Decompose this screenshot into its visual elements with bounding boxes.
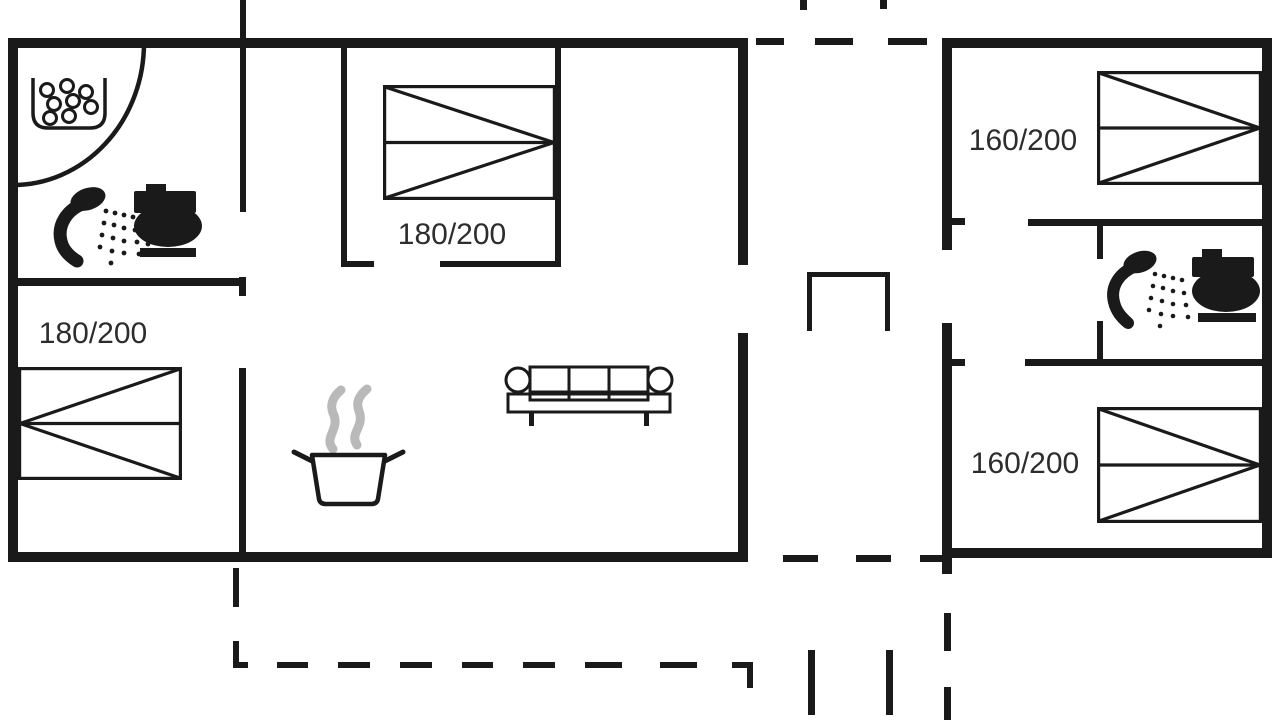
dashed-line xyxy=(808,650,815,715)
dashed-line xyxy=(888,38,927,45)
dashed-line xyxy=(338,662,370,668)
bed-size-label: 180/200 xyxy=(352,220,552,250)
main-house-wall-right-upper xyxy=(738,38,748,265)
shower-icon xyxy=(1098,248,1198,336)
dashed-line xyxy=(880,0,887,9)
dashed-line xyxy=(523,662,555,668)
dashed-line xyxy=(856,555,891,562)
bed-size-label: 160/200 xyxy=(923,126,1123,156)
dashed-line xyxy=(815,38,853,45)
double-bed-icon xyxy=(1097,71,1262,185)
bedroom-wall-bottom-b xyxy=(440,261,561,267)
dashed-line xyxy=(886,650,893,715)
dashed-line xyxy=(462,662,493,668)
main-house-wall-right-lower xyxy=(738,333,748,562)
cooking-pot-icon xyxy=(285,383,410,508)
steam-icon xyxy=(355,389,367,445)
annex-wall-left-lower xyxy=(942,323,952,558)
annex-wall-stub xyxy=(942,558,952,574)
bathroom-dividing-wall xyxy=(18,278,242,286)
bedroom-wall-bottom-a xyxy=(341,261,374,267)
bed-size-label: 160/200 xyxy=(925,449,1125,479)
main-house-wall-bottom xyxy=(8,552,748,562)
interior-wall-spine-upper xyxy=(240,0,246,212)
double-bed-icon xyxy=(18,367,182,480)
dashed-line xyxy=(747,662,753,688)
dashed-line xyxy=(783,555,818,562)
dashed-line xyxy=(660,662,697,668)
annex-interior-wall-top xyxy=(1028,219,1262,226)
annex-interior-wall-bottom-stub xyxy=(952,359,965,366)
double-bed-icon xyxy=(1097,407,1262,523)
bedroom-wall-left xyxy=(341,48,347,266)
toilet-icon xyxy=(132,184,204,264)
dashed-line xyxy=(756,38,784,45)
toilet-icon xyxy=(1190,247,1264,331)
door-marker-right xyxy=(885,272,890,331)
dashed-line xyxy=(944,613,951,651)
dashed-line xyxy=(944,687,951,720)
dashed-line xyxy=(400,662,432,668)
double-bed-icon xyxy=(383,85,556,200)
dashed-line xyxy=(233,662,248,668)
dashed-line xyxy=(585,662,622,668)
annex-wall-top xyxy=(945,38,1272,48)
door-marker-top xyxy=(807,272,890,277)
door-arc xyxy=(10,40,152,190)
interior-wall-spine-lower xyxy=(239,368,246,552)
door-marker-left xyxy=(807,272,812,331)
floor-plan: 180/200 180/200 xyxy=(0,0,1280,720)
steam-icon xyxy=(330,390,341,449)
door-jamb xyxy=(239,277,246,296)
annex-interior-wall-bottom xyxy=(1025,359,1262,366)
annex-interior-wall-top-stub xyxy=(952,218,965,225)
dashed-line xyxy=(277,662,308,668)
sofa-icon xyxy=(503,364,675,430)
bed-size-label: 180/200 xyxy=(3,319,183,349)
dashed-line xyxy=(233,568,239,607)
annex-wall-bottom xyxy=(945,548,1272,558)
dashed-line xyxy=(800,0,807,10)
